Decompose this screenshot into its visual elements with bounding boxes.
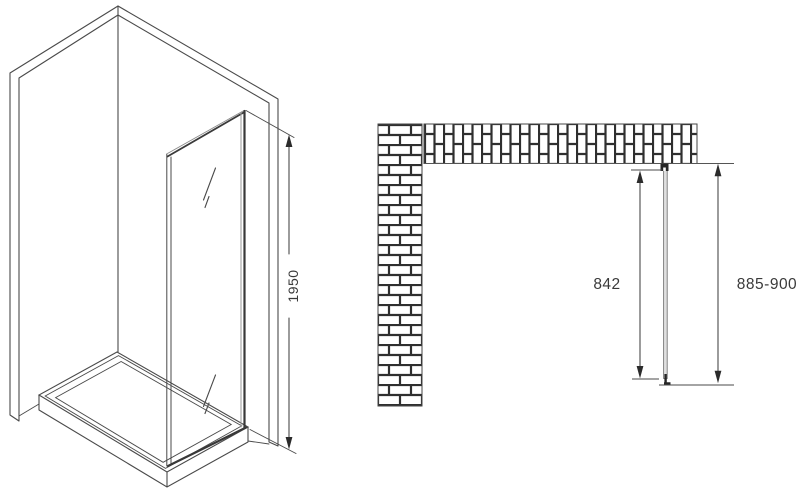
glass-panel-plan (661, 164, 671, 384)
brick-wall-top (424, 124, 697, 164)
shower-panel-technical-drawing: 1950 842 (0, 0, 800, 488)
arrow-down-icon (637, 366, 644, 379)
arrow-down-icon (715, 371, 722, 384)
brick-wall-left (378, 124, 422, 406)
right-wall (118, 6, 278, 446)
dimension-height: 1950 (246, 111, 301, 454)
arrow-down-icon (286, 437, 293, 450)
left-wall (10, 6, 118, 421)
glass-symbol-upper (204, 168, 216, 208)
extension-line-top (246, 111, 294, 138)
arrow-up-icon (637, 171, 644, 184)
dimension-panel-length-label: 842 (593, 276, 620, 293)
isometric-view: 1950 (10, 6, 301, 487)
plan-view: 842 885-900 (378, 124, 797, 406)
dimension-panel-length: 842 (593, 170, 662, 379)
glass-panel (167, 111, 246, 467)
arrow-up-icon (715, 164, 722, 177)
dimension-install-width: 885-900 (659, 164, 797, 385)
dimension-height-label: 1950 (285, 269, 301, 302)
technical-drawing-canvas: 1950 842 (0, 0, 800, 488)
shower-tray (39, 352, 248, 487)
dimension-install-width-label: 885-900 (737, 276, 797, 293)
